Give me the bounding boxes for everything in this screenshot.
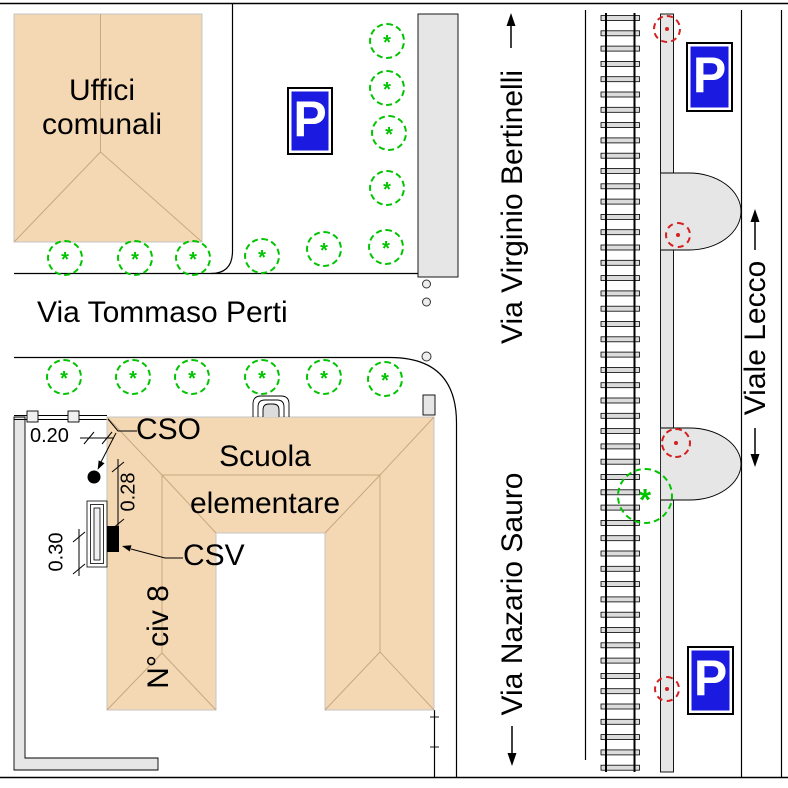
tree-green: * bbox=[369, 23, 405, 59]
parking-sign-letter: P bbox=[694, 653, 727, 708]
cso-label: CSO bbox=[136, 413, 201, 447]
tree-center-mark: * bbox=[258, 369, 266, 389]
tree-center-mark: * bbox=[320, 241, 328, 261]
bollard-3 bbox=[422, 352, 431, 361]
parking-sign: P bbox=[686, 42, 733, 112]
parking-sign: P bbox=[287, 87, 333, 155]
parking-sign-letter: P bbox=[293, 94, 326, 149]
tree-center-dot bbox=[665, 687, 669, 691]
fence bbox=[14, 411, 107, 422]
dim-028-label: 0.28 bbox=[118, 473, 141, 512]
cso-manhole-dot bbox=[88, 471, 101, 484]
bollards bbox=[422, 280, 431, 361]
tree-green: * bbox=[244, 359, 280, 395]
tree-center-mark: * bbox=[258, 248, 266, 268]
tree-green: * bbox=[115, 359, 151, 395]
csv-label: CSV bbox=[183, 539, 245, 573]
tree-red bbox=[661, 428, 691, 458]
sidewalk-strip-north bbox=[418, 14, 458, 277]
tree-center-dot bbox=[665, 27, 669, 31]
tree-center-mark: * bbox=[383, 80, 391, 100]
csv-object bbox=[107, 526, 119, 552]
sauro-arrow-down-icon bbox=[508, 753, 517, 766]
tree-red bbox=[653, 15, 681, 43]
tree-center-mark: * bbox=[382, 239, 390, 259]
stairwell-inner bbox=[94, 508, 100, 560]
tree-center-mark: * bbox=[61, 250, 69, 270]
via-nazario-sauro-label: Via Nazario Sauro bbox=[496, 473, 530, 716]
dim-020-label: 0.20 bbox=[30, 425, 69, 448]
platform-strip bbox=[661, 14, 674, 772]
tree-center-mark: * bbox=[320, 369, 328, 389]
tree-center-mark: * bbox=[639, 484, 651, 515]
tree-red bbox=[665, 222, 691, 248]
tree-green: * bbox=[244, 238, 280, 274]
bollard-1 bbox=[423, 280, 431, 288]
tree-center-mark: * bbox=[188, 369, 196, 389]
site-plan-drawing: Uffici comunali Via Tommaso Perti Scuola… bbox=[0, 0, 788, 788]
dim-030-label: 0.30 bbox=[46, 533, 69, 572]
tree-green: * bbox=[306, 231, 342, 267]
tree-green: * bbox=[617, 468, 673, 524]
tree-green: * bbox=[369, 170, 405, 206]
lecco-arrow-down-icon bbox=[751, 454, 760, 467]
entrance-inner bbox=[263, 404, 279, 417]
viale-lecco-label: Viale Lecco bbox=[739, 261, 773, 416]
tree-red bbox=[654, 676, 680, 702]
tree-green: * bbox=[367, 361, 403, 397]
tree-green: * bbox=[174, 359, 210, 395]
cso-arrowhead bbox=[98, 460, 105, 469]
bertinelli-arrow-up-icon bbox=[507, 13, 516, 26]
tree-center-mark: * bbox=[383, 33, 391, 53]
tree-green: * bbox=[175, 240, 211, 276]
tree-green: * bbox=[117, 240, 153, 276]
via-virginio-bertinelli-label: Via Virginio Bertinelli bbox=[496, 70, 530, 344]
tree-green: * bbox=[46, 359, 82, 395]
school-entrance bbox=[253, 396, 289, 417]
tree-green: * bbox=[306, 359, 342, 395]
parking-sign: P bbox=[687, 646, 734, 715]
fence-post-2 bbox=[68, 411, 79, 422]
tree-center-mark: * bbox=[385, 125, 393, 145]
tree-center-mark: * bbox=[381, 371, 389, 391]
tree-green: * bbox=[47, 240, 83, 276]
tree-green: * bbox=[371, 115, 407, 151]
lecco-arrow-up-icon bbox=[751, 209, 760, 222]
tree-center-dot bbox=[676, 233, 680, 237]
tree-green: * bbox=[369, 70, 405, 106]
school-pillar bbox=[423, 395, 435, 415]
tree-green: * bbox=[368, 229, 404, 265]
tree-center-mark: * bbox=[189, 250, 197, 270]
scuola-elementare-label: Scuola elementare bbox=[150, 433, 380, 527]
tree-center-mark: * bbox=[131, 250, 139, 270]
driveway-west-edge bbox=[211, 4, 233, 274]
tree-center-mark: * bbox=[129, 369, 137, 389]
via-tommaso-perti-label: Via Tommaso Perti bbox=[37, 296, 288, 330]
uffici-comunali-label: Uffici comunali bbox=[8, 74, 196, 142]
tree-center-mark: * bbox=[383, 180, 391, 200]
fence-post-1 bbox=[27, 411, 38, 422]
parking-sign-letter: P bbox=[693, 50, 726, 105]
tree-center-dot bbox=[674, 441, 678, 445]
tree-center-mark: * bbox=[60, 369, 68, 389]
civic-number-label: N° civ 8 bbox=[142, 585, 176, 689]
bollard-2 bbox=[423, 298, 431, 306]
